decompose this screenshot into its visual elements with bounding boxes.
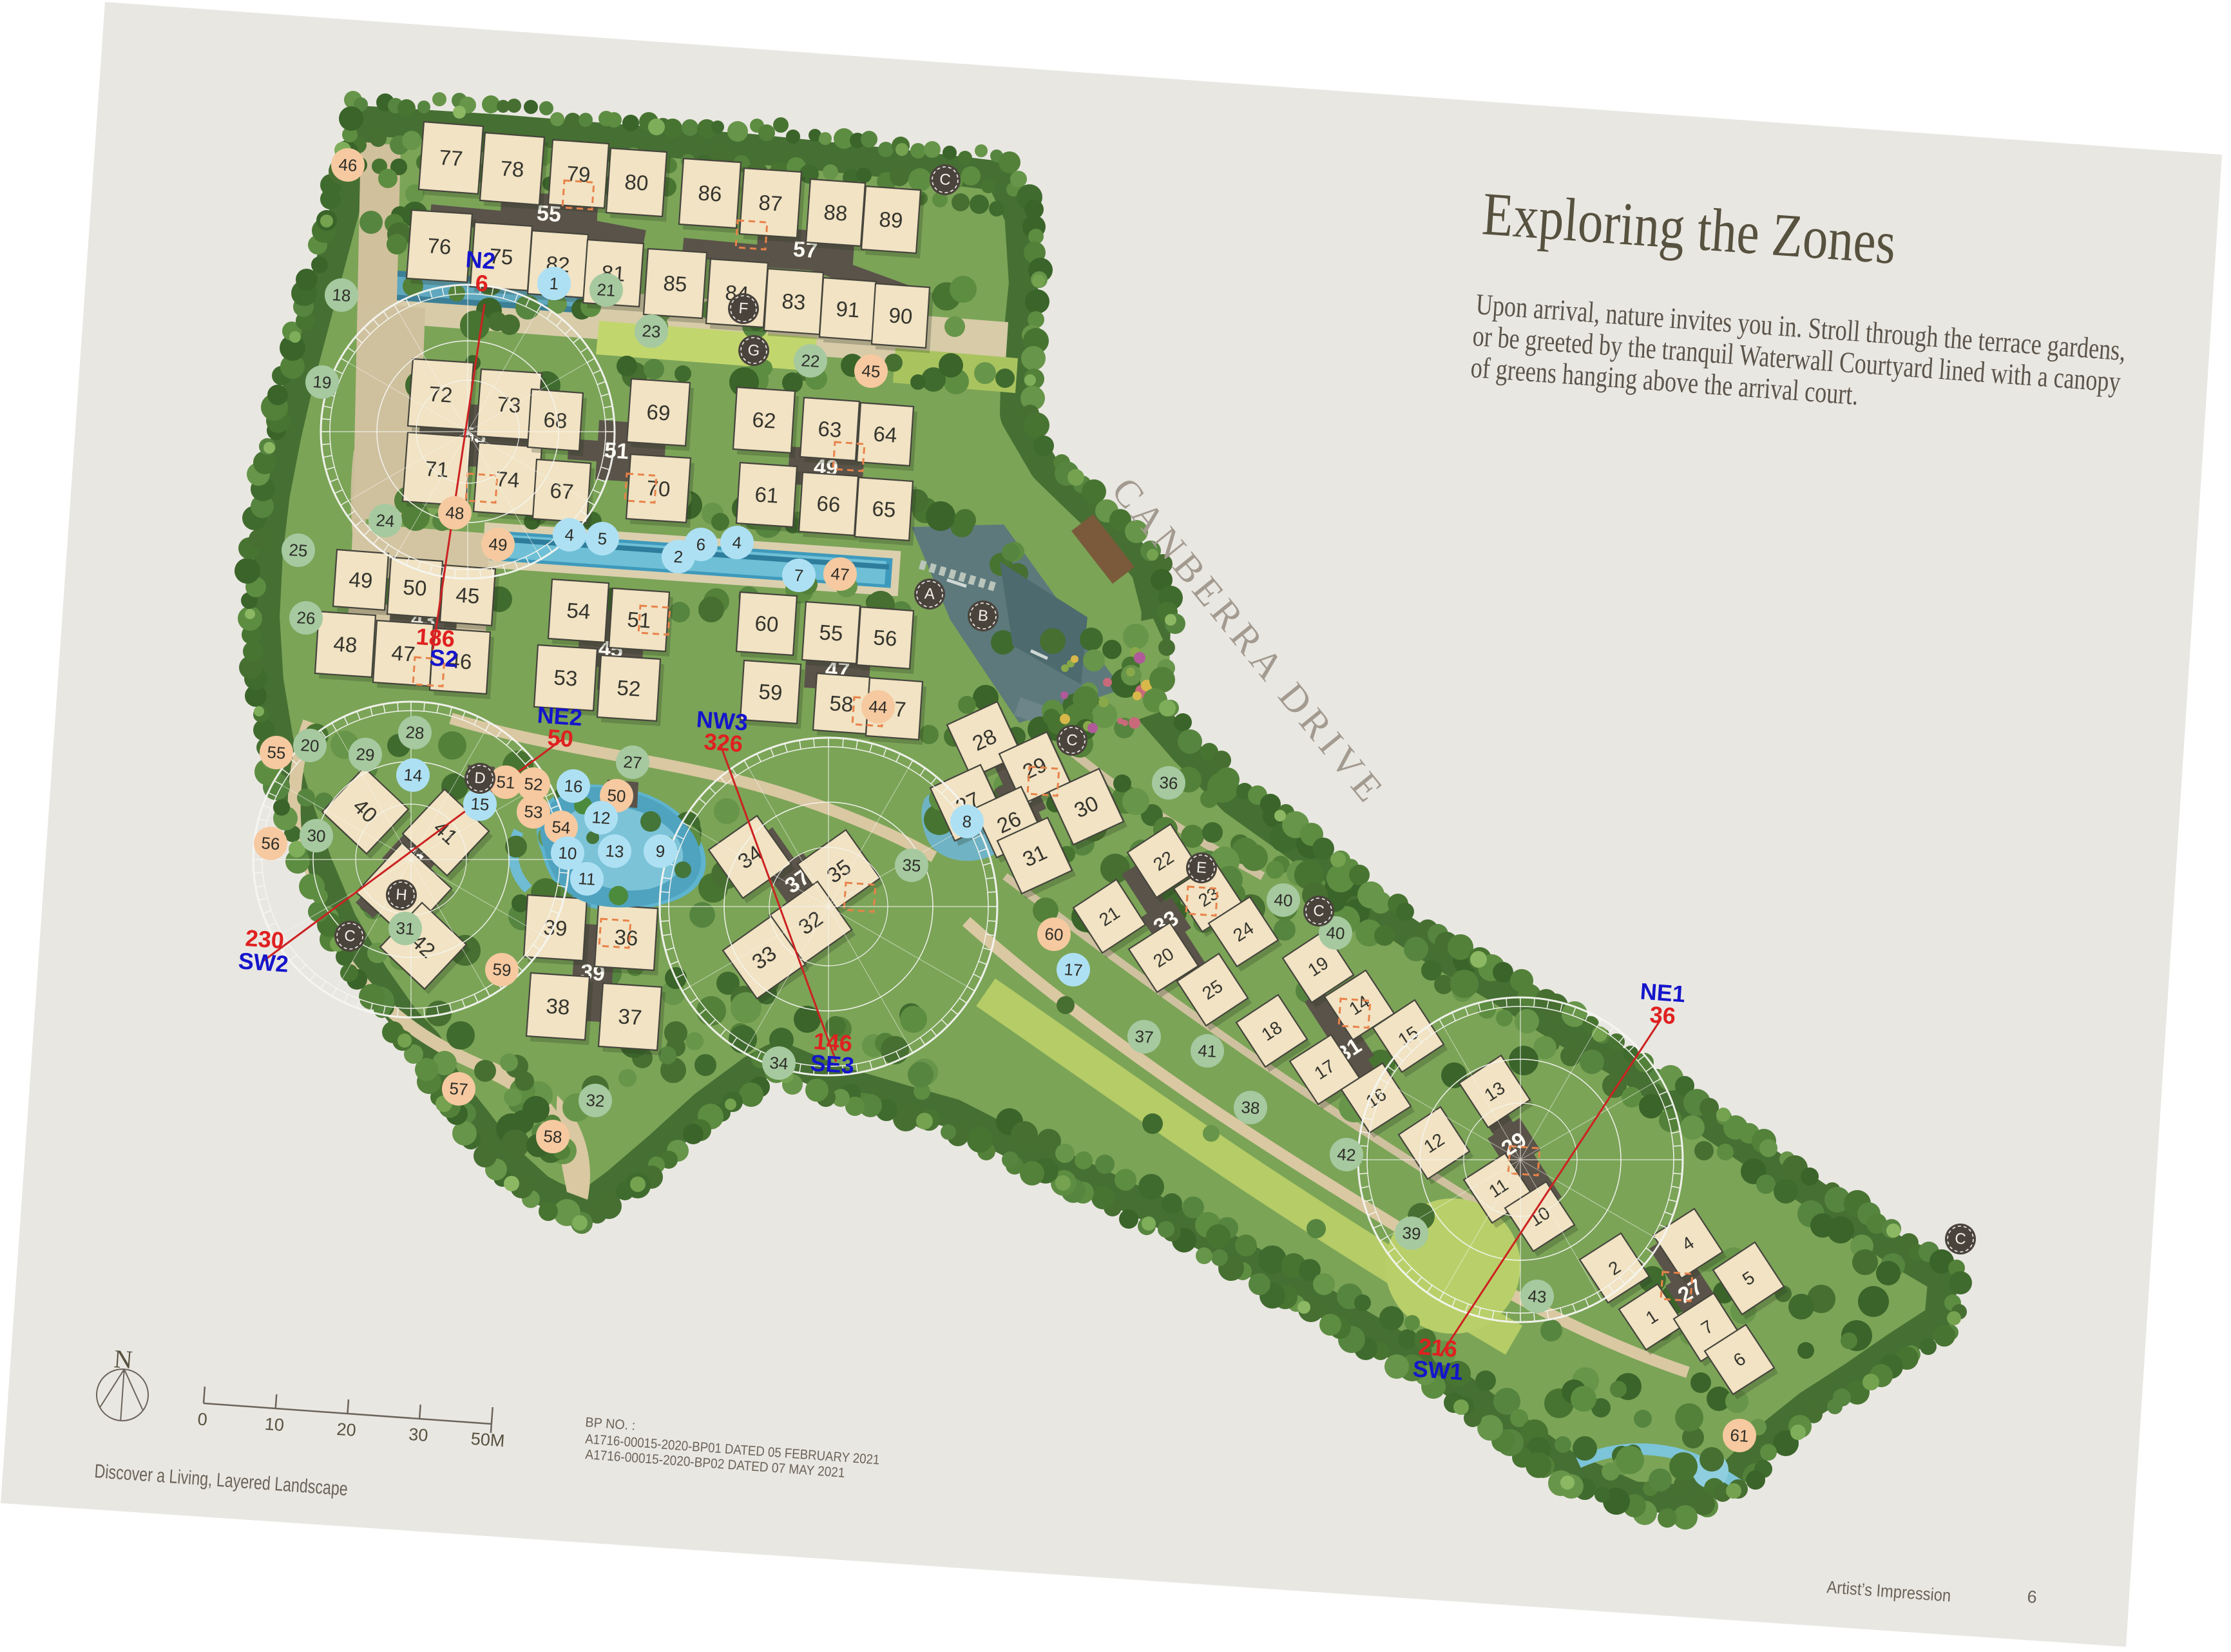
svg-text:20: 20 xyxy=(336,1419,357,1440)
svg-text:88: 88 xyxy=(823,200,848,225)
svg-text:91: 91 xyxy=(835,296,860,322)
svg-text:86: 86 xyxy=(697,180,722,206)
svg-text:37: 37 xyxy=(1135,1026,1154,1047)
svg-text:45: 45 xyxy=(455,582,480,608)
svg-text:C: C xyxy=(343,927,356,945)
svg-text:B: B xyxy=(977,607,989,625)
svg-text:40: 40 xyxy=(1326,923,1346,943)
svg-text:48: 48 xyxy=(445,503,465,523)
svg-text:65: 65 xyxy=(871,496,896,521)
svg-text:36: 36 xyxy=(1159,773,1179,793)
svg-text:41: 41 xyxy=(1198,1041,1218,1061)
svg-text:83: 83 xyxy=(781,289,806,314)
svg-text:49: 49 xyxy=(348,567,373,592)
svg-text:53: 53 xyxy=(553,665,578,690)
svg-text:50: 50 xyxy=(546,724,574,753)
svg-text:54: 54 xyxy=(566,598,591,623)
svg-text:87: 87 xyxy=(758,190,783,215)
svg-text:59: 59 xyxy=(758,679,783,704)
svg-text:SE3: SE3 xyxy=(810,1050,856,1079)
svg-text:29: 29 xyxy=(356,744,376,765)
svg-text:326: 326 xyxy=(703,728,743,757)
svg-text:73: 73 xyxy=(496,392,521,417)
svg-text:N: N xyxy=(113,1344,133,1374)
svg-text:0: 0 xyxy=(197,1409,208,1429)
svg-text:E: E xyxy=(1196,859,1207,877)
svg-text:32: 32 xyxy=(586,1090,606,1111)
svg-text:52: 52 xyxy=(524,774,544,794)
svg-text:22: 22 xyxy=(801,351,821,371)
svg-text:17: 17 xyxy=(1064,959,1084,980)
svg-text:8: 8 xyxy=(962,812,973,832)
svg-text:69: 69 xyxy=(646,399,671,425)
svg-text:28: 28 xyxy=(405,722,425,743)
svg-text:85: 85 xyxy=(662,271,687,296)
svg-text:10: 10 xyxy=(264,1414,285,1435)
svg-text:14: 14 xyxy=(403,765,423,785)
svg-text:37: 37 xyxy=(617,1004,642,1029)
svg-text:36: 36 xyxy=(1649,1001,1676,1030)
svg-text:38: 38 xyxy=(545,994,570,1019)
svg-text:49: 49 xyxy=(488,534,508,555)
svg-text:61: 61 xyxy=(1730,1425,1750,1446)
svg-text:45: 45 xyxy=(861,361,881,381)
svg-text:76: 76 xyxy=(426,233,452,258)
svg-text:C: C xyxy=(1954,1230,1966,1248)
svg-text:SW2: SW2 xyxy=(238,947,290,977)
svg-text:50: 50 xyxy=(607,785,627,806)
svg-text:47: 47 xyxy=(390,640,416,666)
svg-text:6: 6 xyxy=(696,535,707,555)
svg-text:9: 9 xyxy=(655,841,666,861)
svg-text:55: 55 xyxy=(818,620,843,645)
svg-text:60: 60 xyxy=(754,611,779,636)
svg-text:44: 44 xyxy=(868,696,888,717)
svg-text:70: 70 xyxy=(646,475,671,501)
svg-text:50M: 50M xyxy=(470,1429,506,1451)
svg-text:54: 54 xyxy=(551,817,571,838)
svg-text:60: 60 xyxy=(1044,924,1064,945)
svg-text:6: 6 xyxy=(2027,1587,2038,1607)
svg-text:43: 43 xyxy=(1527,1286,1547,1307)
svg-text:1: 1 xyxy=(549,274,560,294)
svg-text:51: 51 xyxy=(604,438,629,465)
svg-text:46: 46 xyxy=(338,155,358,175)
svg-text:18: 18 xyxy=(332,285,352,305)
svg-text:A: A xyxy=(924,585,935,603)
svg-text:C: C xyxy=(1066,731,1078,749)
svg-text:13: 13 xyxy=(605,841,625,861)
svg-text:25: 25 xyxy=(289,540,309,561)
svg-text:47: 47 xyxy=(830,564,850,584)
svg-text:90: 90 xyxy=(888,303,913,328)
svg-text:66: 66 xyxy=(816,491,841,516)
svg-text:20: 20 xyxy=(300,735,320,756)
svg-text:55: 55 xyxy=(267,742,287,763)
svg-text:59: 59 xyxy=(492,959,512,980)
svg-text:10: 10 xyxy=(558,843,578,863)
svg-text:26: 26 xyxy=(296,608,316,628)
svg-text:89: 89 xyxy=(878,207,903,232)
svg-text:52: 52 xyxy=(616,675,641,700)
svg-text:56: 56 xyxy=(872,625,897,650)
svg-text:G: G xyxy=(747,341,761,360)
svg-text:12: 12 xyxy=(591,807,611,828)
svg-text:4: 4 xyxy=(564,525,575,545)
svg-text:6: 6 xyxy=(474,269,489,296)
svg-text:34: 34 xyxy=(769,1053,789,1073)
svg-text:5: 5 xyxy=(597,529,608,549)
svg-text:77: 77 xyxy=(438,145,463,170)
svg-text:7: 7 xyxy=(794,566,805,586)
svg-text:30: 30 xyxy=(307,825,327,846)
svg-text:C: C xyxy=(939,171,951,189)
svg-text:39: 39 xyxy=(1402,1223,1422,1244)
svg-text:SW1: SW1 xyxy=(1412,1355,1464,1385)
svg-text:58: 58 xyxy=(543,1126,563,1147)
svg-text:15: 15 xyxy=(470,794,490,814)
svg-text:D: D xyxy=(474,769,486,787)
svg-text:35: 35 xyxy=(902,855,922,876)
svg-text:56: 56 xyxy=(261,833,281,854)
svg-text:62: 62 xyxy=(751,407,776,432)
svg-text:38: 38 xyxy=(1241,1097,1261,1118)
svg-text:42: 42 xyxy=(1337,1144,1357,1165)
svg-text:31: 31 xyxy=(396,918,416,939)
svg-text:53: 53 xyxy=(524,802,544,822)
svg-text:50: 50 xyxy=(402,575,427,600)
svg-text:4: 4 xyxy=(732,533,743,553)
svg-text:68: 68 xyxy=(542,407,568,432)
svg-text:F: F xyxy=(738,300,749,318)
svg-text:63: 63 xyxy=(817,416,842,441)
svg-text:24: 24 xyxy=(376,510,396,531)
svg-text:51: 51 xyxy=(496,772,516,792)
svg-text:2: 2 xyxy=(673,547,684,567)
svg-text:C: C xyxy=(1312,902,1325,920)
svg-text:39: 39 xyxy=(542,915,568,940)
svg-text:80: 80 xyxy=(624,169,649,195)
svg-text:27: 27 xyxy=(623,752,643,773)
svg-text:64: 64 xyxy=(872,421,897,447)
svg-text:30: 30 xyxy=(408,1425,428,1445)
svg-text:58: 58 xyxy=(828,691,854,716)
svg-text:S2: S2 xyxy=(428,644,459,673)
svg-text:74: 74 xyxy=(495,466,520,492)
svg-text:16: 16 xyxy=(564,776,584,796)
svg-text:H: H xyxy=(395,886,407,904)
svg-text:78: 78 xyxy=(499,156,524,181)
svg-text:11: 11 xyxy=(577,869,596,889)
svg-text:40: 40 xyxy=(1274,890,1294,910)
svg-text:19: 19 xyxy=(312,372,332,392)
svg-text:23: 23 xyxy=(642,321,662,341)
svg-text:21: 21 xyxy=(597,280,617,300)
svg-text:48: 48 xyxy=(332,631,358,657)
svg-text:57: 57 xyxy=(449,1079,469,1099)
svg-text:61: 61 xyxy=(754,482,779,507)
